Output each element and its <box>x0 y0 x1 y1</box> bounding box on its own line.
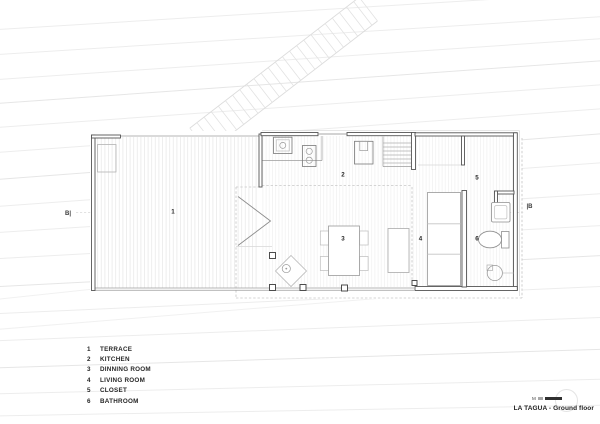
terrace-left-wall <box>92 135 96 291</box>
legend-number: 1 <box>87 346 100 353</box>
kitchen-left-wall <box>259 134 262 187</box>
scale-segment <box>538 397 543 400</box>
washbasin <box>492 203 511 223</box>
exterior-steps <box>190 0 378 152</box>
section-marker-left: B| <box>65 211 71 217</box>
legend-number: 3 <box>87 366 100 373</box>
terrace-decking <box>95 137 259 288</box>
room-number-living-room: 4 <box>419 236 423 243</box>
toilet <box>479 231 510 248</box>
legend-item: 3 DINNING ROOM <box>87 365 151 375</box>
room-number-terrace: 1 <box>171 209 175 216</box>
chair <box>320 257 328 271</box>
legend-label: KITCHEN <box>100 356 130 363</box>
room-number-bathroom: 6 <box>475 236 479 243</box>
closet-stub-wall <box>462 136 465 165</box>
legend-item: 4 LIVING ROOM <box>87 375 151 385</box>
legend-label: DINNING ROOM <box>100 366 151 373</box>
sideboard <box>388 229 409 273</box>
scale-unit-label: M <box>532 396 536 401</box>
scale-bar: M <box>532 396 562 401</box>
bathroom-partition-wall <box>462 191 467 288</box>
legend-item: 1 TERRACE <box>87 344 151 354</box>
legend-label: TERRACE <box>100 346 132 353</box>
legend-number: 5 <box>87 387 100 394</box>
legend-item: 2 KITCHEN <box>87 354 151 364</box>
title-block: M LA TAGUA - Ground floor <box>466 386 596 422</box>
sheet-title: LA TAGUA - Ground floor <box>514 405 594 412</box>
legend-label: CLOSET <box>100 387 127 394</box>
floor-plan: 1 2 3 4 5 6 <box>76 131 524 299</box>
chair <box>360 257 368 271</box>
legend-number: 6 <box>87 398 100 405</box>
north-wall-b <box>347 133 412 136</box>
scale-segment <box>545 397 562 400</box>
plan-sheet: 1 2 3 4 5 6 B| |B 1 TERRACE 2 KITCHEN 3 … <box>0 0 600 424</box>
bathroom-jamb-v <box>495 191 498 203</box>
legend-number: 4 <box>87 377 100 384</box>
chair <box>320 231 328 245</box>
chair <box>360 231 368 245</box>
legend-number: 2 <box>87 356 100 363</box>
north-wall-a <box>261 133 318 136</box>
stair-side-wall <box>412 133 416 170</box>
legend-item: 5 CLOSET <box>87 386 151 396</box>
room-number-kitchen: 2 <box>341 172 345 179</box>
section-marker-right: |B <box>526 204 533 210</box>
north-wall-c <box>415 133 517 136</box>
legend-item: 6 BATHROOM <box>87 396 151 406</box>
sofa-daybed <box>428 193 461 286</box>
legend: 1 TERRACE 2 KITCHEN 3 DINNING ROOM 4 LIV… <box>87 344 151 406</box>
room-number-dining-room: 3 <box>341 236 345 243</box>
room-number-closet: 5 <box>475 175 479 182</box>
east-wall <box>514 133 518 290</box>
terrace-top-wall <box>92 135 121 138</box>
legend-label: BATHROOM <box>100 398 139 405</box>
legend-label: LIVING ROOM <box>100 377 145 384</box>
